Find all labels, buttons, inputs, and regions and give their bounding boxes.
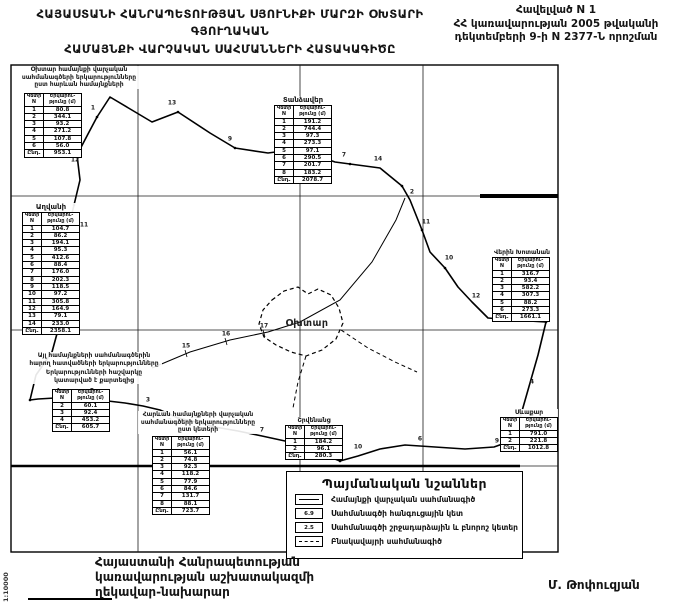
table-cell: 56.0: [44, 143, 82, 150]
total-label: Ընդ.: [53, 424, 72, 431]
table-row: 4453.2: [53, 417, 110, 424]
table2-title: Տանձավեր: [274, 96, 332, 104]
table5-note: Այլ համայնքների սահմանագծերին հարող հատվ…: [26, 352, 162, 384]
col-header-point: Կետի N: [501, 418, 520, 431]
legend-item-label: Համայնքի վարչական սահմանագիծ: [331, 495, 475, 504]
table-cell: 1: [501, 430, 520, 437]
col-header-point: Կետի N: [25, 94, 44, 107]
boundary-point-number: 1: [91, 105, 95, 112]
table-row: 392.3: [153, 464, 210, 471]
table-cell: 2: [286, 445, 305, 452]
col-header-length: Երկարու- թյունը (մ): [305, 426, 343, 439]
table-row: 4273.3: [275, 140, 332, 147]
border-table-5: Կետի NԵրկարու- թյունը (մ)260.1392.44453.…: [52, 389, 110, 432]
table-row: 4307.3: [493, 292, 550, 299]
table-row: 4271.2: [25, 128, 82, 135]
legend-item-label: Սահմանագծի հանգուցային կետ: [331, 509, 463, 518]
table-cell: 305.8: [42, 298, 80, 305]
boundary-point-number: 12: [472, 293, 480, 300]
total-label: Ընդ.: [286, 453, 305, 460]
table-row: 1104.7: [23, 225, 80, 232]
total-value: 2078.7: [294, 177, 332, 184]
border-table-tandzaver: Տանձավեր Կետի NԵրկարու- թյունը (մ)1191.2…: [274, 96, 332, 184]
table-row: 156.1: [153, 449, 210, 456]
boundary-point-number: 16: [222, 331, 230, 338]
boundary-point-number: 15: [182, 343, 190, 350]
col-header-point: Կետի N: [153, 437, 172, 450]
boundary-point-number: 7: [260, 427, 264, 434]
table-row: 597.1: [275, 147, 332, 154]
table-cell: 9: [23, 284, 42, 291]
col-header-point: Կետի N: [286, 426, 305, 439]
table-row: 1184.2: [286, 438, 343, 445]
table-cell: 97.1: [294, 147, 332, 154]
table-row: 274.8: [153, 456, 210, 463]
col-header-point: Կետի N: [23, 213, 42, 226]
table-cell: 5: [275, 147, 294, 154]
border-table-6: Կետի NԵրկարու- թյունը (մ)156.1274.8392.3…: [152, 436, 210, 515]
signature-name: Մ. Թոփուզյան: [548, 578, 668, 592]
table-cell: 4: [25, 128, 44, 135]
table-row: 688.4: [23, 262, 80, 269]
table4-title: Վերին Խոտանան: [492, 249, 552, 256]
table-cell: 3: [275, 133, 294, 140]
table-cell: 3: [23, 240, 42, 247]
boundary-point-number: 17: [260, 323, 268, 330]
table-row: 8183.2: [275, 169, 332, 176]
table-cell: 1: [493, 270, 512, 277]
table-row: 392.4: [53, 409, 110, 416]
table-total-row: Ընդ.1661.1: [493, 314, 550, 321]
border-table-1: Կետի NԵրկարու- թյունը (մ)180.82344.1393.…: [24, 93, 82, 158]
col-header-point: Կետի N: [493, 258, 512, 271]
table-cell: 14: [23, 320, 42, 327]
table-cell: 6: [493, 307, 512, 314]
annex-line2: ՀՀ կառավարության 2005 թվականի: [438, 18, 674, 32]
total-value: 953.1: [44, 150, 82, 157]
table-cell: 233.0: [42, 320, 80, 327]
table-cell: 74.8: [172, 456, 210, 463]
total-value: 1012.8: [520, 445, 558, 452]
table-cell: 92.3: [172, 464, 210, 471]
table1-note: Օխտար համայնքի վարչական սահմանագծերի երկ…: [12, 66, 146, 89]
table-row: 180.8: [25, 106, 82, 113]
table-cell: 582.2: [512, 285, 550, 292]
table-row: 1191.2: [275, 118, 332, 125]
total-value: 2358.1: [42, 327, 80, 334]
table-cell: 7: [275, 162, 294, 169]
table-row: 11305.8: [23, 298, 80, 305]
table-row: 260.1: [53, 402, 110, 409]
table-row: 3582.2: [493, 285, 550, 292]
table-cell: 56.1: [172, 449, 210, 456]
table-cell: 3: [25, 121, 44, 128]
table-row: 888.1: [153, 500, 210, 507]
table-cell: 8: [23, 276, 42, 283]
table-cell: 13: [23, 313, 42, 320]
total-value: 280.3: [305, 453, 343, 460]
dashed-line-icon: [295, 536, 323, 547]
table-cell: 60.1: [72, 402, 110, 409]
table-cell: 84.6: [172, 486, 210, 493]
table-row: 495.3: [23, 247, 80, 254]
table-total-row: Ընդ.2358.1: [23, 327, 80, 334]
legend-title: Պայմանական նշաններ: [287, 476, 522, 491]
table7-title: Շրվենանց: [285, 417, 343, 424]
legend-items: Համայնքի վարչական սահմանագիծ6.9Սահմանագծ…: [287, 494, 522, 547]
table-cell: 273.3: [512, 307, 550, 314]
table-cell: 107.8: [44, 135, 82, 142]
boundary-point-number: 7: [342, 152, 346, 159]
col-header-point: Կետի N: [53, 390, 72, 403]
table-row: 1379.1: [23, 313, 80, 320]
boundary-point-number: 4: [530, 379, 534, 386]
table-cell: 290.5: [294, 155, 332, 162]
border-table-aghvani: Աղվանի Կետի NԵրկարու- թյունը (մ)1104.728…: [22, 203, 80, 335]
table-row: 296.1: [286, 445, 343, 452]
table-cell: 183.2: [294, 169, 332, 176]
legend-item: 6.9Սահմանագծի հանգուցային կետ: [295, 508, 522, 519]
table-cell: 2: [23, 232, 42, 239]
table-cell: 4: [53, 417, 72, 424]
table-cell: 97.2: [42, 291, 80, 298]
table-cell: 1: [286, 438, 305, 445]
table-cell: 4: [493, 292, 512, 299]
table-cell: 118.5: [42, 284, 80, 291]
table-cell: 79.1: [42, 313, 80, 320]
table-cell: 96.1: [305, 445, 343, 452]
table-row: 9118.5: [23, 284, 80, 291]
table-cell: 86.2: [42, 232, 80, 239]
table-cell: 273.3: [294, 140, 332, 147]
boundary-point-number: 10: [354, 444, 362, 451]
table-total-row: Ընդ.953.1: [25, 150, 82, 157]
table-cell: 344.1: [44, 113, 82, 120]
total-label: Ընդ.: [23, 327, 42, 334]
table-cell: 6: [275, 155, 294, 162]
table-row: 3194.1: [23, 240, 80, 247]
table-cell: 2: [493, 277, 512, 284]
col-header-length: Երկարու- թյունը (մ): [72, 390, 110, 403]
table-row: 2744.4: [275, 125, 332, 132]
boundary-point-number: 14: [374, 156, 382, 163]
table-cell: 2: [25, 113, 44, 120]
table-row: 1791.0: [501, 430, 558, 437]
table-cell: 12: [23, 305, 42, 312]
table8-title: Սևաքար: [500, 409, 558, 416]
col-header-length: Երկարու- թյունը (մ): [294, 106, 332, 119]
table-cell: 5: [153, 478, 172, 485]
table-cell: 131.7: [172, 493, 210, 500]
boundary-point-number: 9: [495, 438, 499, 445]
table-row: 8202.3: [23, 276, 80, 283]
annex-line3: դեկտեմբերի 9-ի N 2377-Ն որոշման: [438, 31, 674, 45]
table-row: 7176.0: [23, 269, 80, 276]
table-cell: 164.9: [42, 305, 80, 312]
border-table-sevakar: Սևաքար Կետի NԵրկարու- թյունը (մ)1791.022…: [500, 409, 558, 452]
table-cell: 2: [153, 456, 172, 463]
border-table-shrvenants: Շրվենանց Կետի NԵրկարու- թյունը (մ)1184.2…: [285, 417, 343, 460]
table-row: 2344.1: [25, 113, 82, 120]
boundary-point-number: 6: [418, 436, 422, 443]
table-total-row: Ընդ.605.7: [53, 424, 110, 431]
table-cell: 3: [493, 285, 512, 292]
table-cell: 2: [275, 125, 294, 132]
table-row: 1097.2: [23, 291, 80, 298]
scale-label: 1:10000: [2, 572, 10, 602]
border-table-verin-khotanan: Վերին Խոտանան Կետի NԵրկարու- թյունը (մ)1…: [492, 249, 552, 322]
boundary-point-number: 13: [168, 100, 176, 107]
table-cell: 453.2: [72, 417, 110, 424]
table-cell: 92.4: [72, 409, 110, 416]
table-cell: 1: [25, 106, 44, 113]
table-cell: 191.2: [294, 118, 332, 125]
table-cell: 176.0: [42, 269, 80, 276]
table-cell: 95.3: [42, 247, 80, 254]
table-cell: 88.1: [172, 500, 210, 507]
table-row: 7131.7: [153, 493, 210, 500]
table-row: 2221.8: [501, 437, 558, 444]
table-row: 12164.9: [23, 305, 80, 312]
table-cell: 7: [23, 269, 42, 276]
document-title-line1: ՀԱՅԱՍՏԱՆԻ ՀԱՆՐԱՊԵՏՈՒԹՅԱՆ ՍՅՈՒՆԻՔԻ ՄԱՐԶԻ …: [6, 6, 454, 41]
table-cell: 77.9: [172, 478, 210, 485]
table-cell: 307.3: [512, 292, 550, 299]
table6-note: Հարևան համայնքների վարչական սահմանագծերի…: [138, 411, 258, 434]
table-cell: 5: [493, 299, 512, 306]
table-cell: 202.3: [42, 276, 80, 283]
legend-item-label: Բնակավայրի սահմանագիծ: [331, 537, 442, 546]
table-cell: 8: [275, 169, 294, 176]
table-row: 577.9: [153, 478, 210, 485]
table-cell: 791.0: [520, 430, 558, 437]
table-cell: 3: [53, 409, 72, 416]
table-cell: 3: [153, 464, 172, 471]
table-row: 5107.8: [25, 135, 82, 142]
table-row: 393.2: [25, 121, 82, 128]
legend-item: 2.5Սահմանագծի շրջադարձային և բնորոշ կետե…: [295, 522, 522, 533]
table-cell: 412.6: [42, 254, 80, 261]
table-row: 656.0: [25, 143, 82, 150]
document-title-line2: ՀԱՄԱՅՆՔԻ ՎԱՐՉԱԿԱՆ ՍԱՀՄԱՆՆԵՐԻ ՀԱՏԱԿԱԳԻԾԸ: [6, 41, 454, 58]
table-cell: 8: [153, 500, 172, 507]
legend-item: Համայնքի վարչական սահմանագիծ: [295, 494, 522, 505]
table-cell: 201.7: [294, 162, 332, 169]
table-row: 286.2: [23, 232, 80, 239]
table-cell: 194.1: [42, 240, 80, 247]
table-cell: 7: [153, 493, 172, 500]
total-label: Ընդ.: [275, 177, 294, 184]
col-header-length: Երկարու- թյունը (մ): [42, 213, 80, 226]
scanned-map-document: { "header": { "title_line1": "ՀԱՅԱՍՏԱՆԻ …: [0, 0, 675, 610]
table-total-row: Ընդ.723.7: [153, 508, 210, 515]
table-total-row: Ընդ.2078.7: [275, 177, 332, 184]
table-cell: 271.2: [44, 128, 82, 135]
table-cell: 104.7: [42, 225, 80, 232]
table-row: 4118.2: [153, 471, 210, 478]
table-cell: 1: [23, 225, 42, 232]
boundary-point-number: 10: [445, 255, 453, 262]
col-header-length: Երկարու- թյունը (մ): [520, 418, 558, 431]
total-label: Ընդ.: [493, 314, 512, 321]
table-cell: 221.8: [520, 437, 558, 444]
table-cell: 744.4: [294, 125, 332, 132]
col-header-point: Կետի N: [275, 106, 294, 119]
annex-line1: Հավելված N 1: [438, 4, 674, 18]
table-row: 588.2: [493, 299, 550, 306]
total-value: 1661.1: [512, 314, 550, 321]
turn-point-icon: 2.5: [295, 522, 323, 533]
table-cell: 6: [23, 262, 42, 269]
table-cell: 80.8: [44, 106, 82, 113]
footer-office-text: Հայաստանի Հանրապետության կառավարության ա…: [95, 555, 335, 600]
col-header-length: Երկարու- թյունը (մ): [44, 94, 82, 107]
table-cell: 4: [153, 471, 172, 478]
table-cell: 6: [25, 143, 44, 150]
node-point-icon: 6.9: [295, 508, 323, 519]
total-value: 723.7: [172, 508, 210, 515]
table-cell: 5: [23, 254, 42, 261]
table-cell: 316.7: [512, 270, 550, 277]
table-cell: 93.2: [44, 121, 82, 128]
table-cell: 1: [275, 118, 294, 125]
boundary-point-number: 2: [410, 189, 414, 196]
solid-line-icon: [295, 494, 323, 505]
table-cell: 2: [53, 402, 72, 409]
boundary-point-number: 11: [80, 222, 88, 229]
table-cell: 10: [23, 291, 42, 298]
table-cell: 6: [153, 486, 172, 493]
boundary-point-number: 9: [228, 136, 232, 143]
total-label: Ընդ.: [25, 150, 44, 157]
total-value: 605.7: [72, 424, 110, 431]
total-label: Ընդ.: [153, 508, 172, 515]
table-row: 6290.5: [275, 155, 332, 162]
table-row: 684.6: [153, 486, 210, 493]
table-cell: 4: [275, 140, 294, 147]
table-row: 1316.7: [493, 270, 550, 277]
table-cell: 184.2: [305, 438, 343, 445]
table-row: 14233.0: [23, 320, 80, 327]
legend-item: Բնակավայրի սահմանագիծ: [295, 536, 522, 547]
table-cell: 4: [23, 247, 42, 254]
boundary-point-number: 3: [146, 397, 150, 404]
table-cell: 2: [501, 437, 520, 444]
table-row: 7201.7: [275, 162, 332, 169]
settlement-name-label: Օխտար: [272, 318, 342, 329]
table-cell: 118.2: [172, 471, 210, 478]
table-total-row: Ընդ.280.3: [286, 453, 343, 460]
col-header-length: Երկարու- թյունը (մ): [512, 258, 550, 271]
table-row: 397.3: [275, 133, 332, 140]
table-cell: 1: [153, 449, 172, 456]
table-cell: 88.2: [512, 299, 550, 306]
total-label: Ընդ.: [501, 445, 520, 452]
table-row: 293.4: [493, 277, 550, 284]
col-header-length: Երկարու- թյունը (մ): [172, 437, 210, 450]
settlement-dashed-connectors: [293, 330, 417, 408]
table-cell: 97.3: [294, 133, 332, 140]
annex-reference: Հավելված N 1 ՀՀ կառավարության 2005 թվակա…: [438, 4, 674, 45]
table-row: 6273.3: [493, 307, 550, 314]
table-total-row: Ընդ.1012.8: [501, 445, 558, 452]
legend-box: Պայմանական նշաններ Համայնքի վարչական սահ…: [286, 471, 523, 559]
table-cell: 11: [23, 298, 42, 305]
boundary-point-number: 11: [422, 219, 430, 226]
legend-item-label: Սահմանագծի շրջադարձային և բնորոշ կետեր: [331, 523, 518, 532]
table-cell: 5: [25, 135, 44, 142]
table3-title: Աղվանի: [22, 203, 80, 211]
table-cell: 93.4: [512, 277, 550, 284]
table-row: 5412.6: [23, 254, 80, 261]
document-title: ՀԱՅԱՍՏԱՆԻ ՀԱՆՐԱՊԵՏՈՒԹՅԱՆ ՍՅՈՒՆԻՔԻ ՄԱՐԶԻ …: [6, 6, 454, 58]
table-cell: 88.4: [42, 262, 80, 269]
